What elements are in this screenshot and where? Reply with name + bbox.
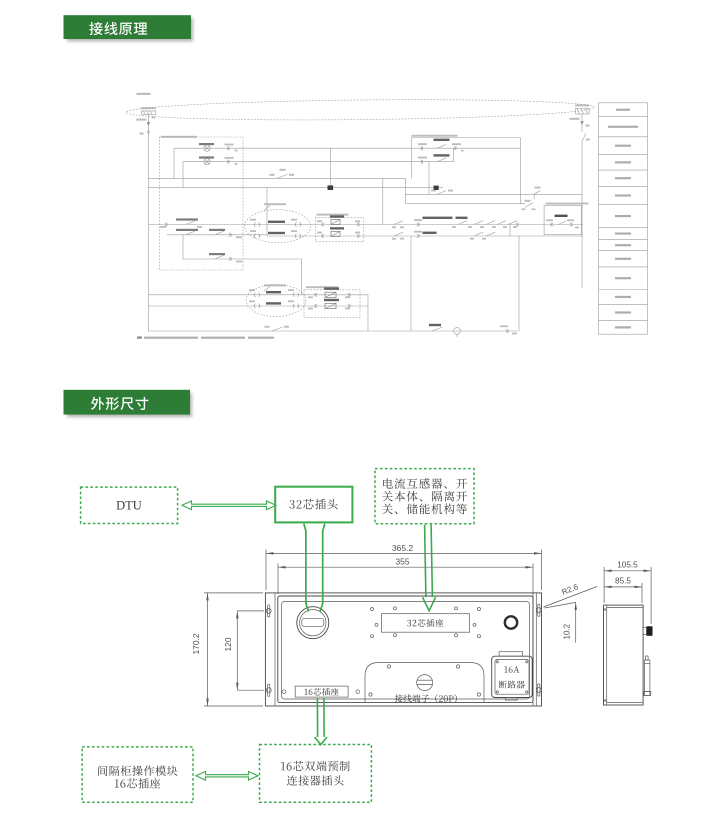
svg-text:10.2: 10.2: [563, 623, 572, 639]
svg-text:105.5: 105.5: [617, 561, 638, 570]
svg-text:120: 120: [223, 637, 233, 651]
svg-text:365.2: 365.2: [392, 543, 413, 553]
svg-text:355: 355: [396, 557, 410, 567]
svg-text:DTU: DTU: [116, 498, 142, 512]
svg-text:85.5: 85.5: [615, 577, 631, 586]
svg-text:170.2: 170.2: [191, 633, 201, 654]
